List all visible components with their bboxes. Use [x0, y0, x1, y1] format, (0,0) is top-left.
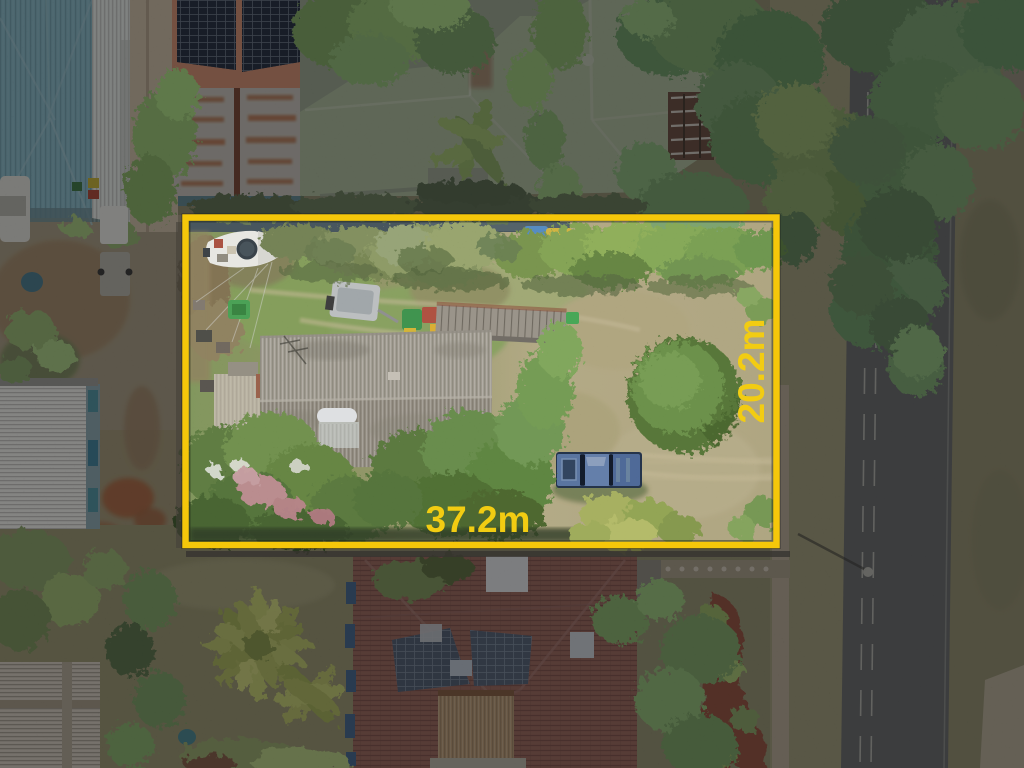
svg-text:37.2m: 37.2m [426, 499, 531, 540]
svg-text:20.2m: 20.2m [731, 319, 772, 424]
